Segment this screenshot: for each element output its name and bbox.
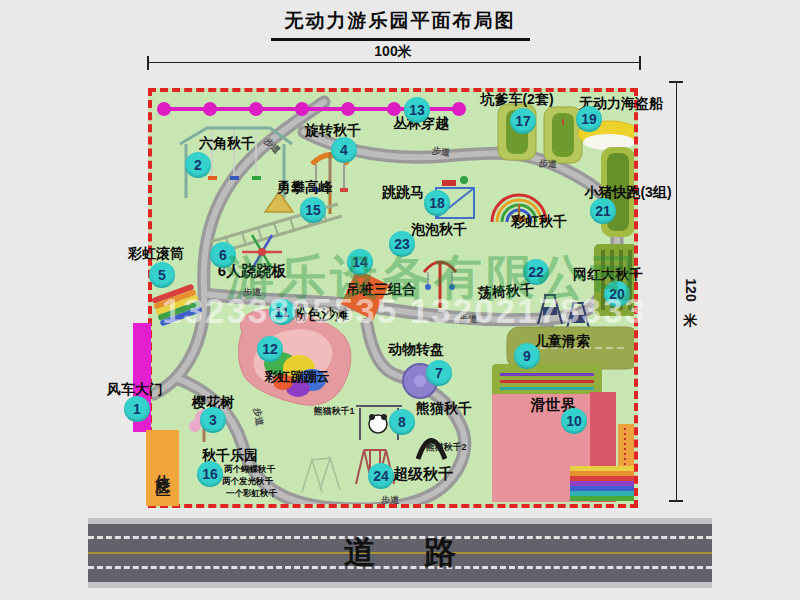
label-hexagon-swing: 六角秋千 xyxy=(199,135,255,153)
slide-world-blocks xyxy=(492,364,634,502)
title-wrap: 无动力游乐园平面布局图 xyxy=(0,8,800,41)
badge-14: 14 xyxy=(347,249,373,275)
path-label: 步道 xyxy=(243,286,261,299)
badge-3: 3 xyxy=(200,407,226,433)
badge-6: 6 xyxy=(210,242,236,268)
badge-19: 19 xyxy=(576,106,602,132)
dim-tick xyxy=(147,56,149,70)
dim-tick xyxy=(669,81,683,83)
badge-21: 21 xyxy=(590,198,616,224)
label-panda-swing-1: 熊猫秋千1 xyxy=(313,405,354,418)
dim-tick xyxy=(639,56,641,70)
rest-area-box: 休息区 xyxy=(146,430,179,506)
label-zipline: 儿童滑索 xyxy=(534,333,590,351)
badge-12: 12 xyxy=(257,336,283,362)
height-dimension-label: 120米 xyxy=(682,278,700,301)
label-panda-swing: 熊猫秋千 xyxy=(416,400,472,418)
rainbow-roller-icon xyxy=(152,283,203,326)
badge-18: 18 xyxy=(424,190,450,216)
label-rainbow-swing: 彩虹秋千 xyxy=(511,213,567,231)
label-pink-beach: 粉色沙滩 xyxy=(293,306,349,324)
bubble-swing-icon xyxy=(424,262,456,308)
label-pit-cart: 坑爹车(2套) xyxy=(480,91,553,109)
path-label: 步道 xyxy=(459,313,477,326)
path-label: 步道 xyxy=(538,157,557,172)
badge-13: 13 xyxy=(404,97,430,123)
rest-area-label: 休息区 xyxy=(153,462,172,474)
badge-20: 20 xyxy=(604,281,630,307)
badge-17: 17 xyxy=(510,108,536,134)
label-climbing-peak: 勇攀高峰 xyxy=(277,179,333,197)
label-rainbow-cloud: 彩虹蹦蹦云 xyxy=(265,368,330,386)
label-swing-park-note-2: 两个发光秋千 xyxy=(222,476,273,488)
road-label: 道路 xyxy=(344,531,504,575)
badge-23: 23 xyxy=(389,231,415,257)
label-super-swing: 超级秋千 xyxy=(393,465,453,484)
width-dimension-label: 100米 xyxy=(374,43,411,61)
label-jumping-horse: 跳跳马 xyxy=(382,184,424,202)
path-label: 步道 xyxy=(431,144,451,159)
badge-5: 5 xyxy=(149,262,175,288)
badge-10: 10 xyxy=(561,408,587,434)
badge-2: 2 xyxy=(185,152,211,178)
label-panda-swing-2: 熊猫秋千2 xyxy=(425,441,466,454)
park-layout-map: 无动力游乐园平面布局图 100米 120米 xyxy=(0,0,800,600)
road: 道路 xyxy=(88,518,712,588)
path-label: 步道 xyxy=(381,494,399,507)
badge-9: 9 xyxy=(514,343,540,369)
badge-8: 8 xyxy=(389,409,415,435)
dim-tick xyxy=(669,500,683,502)
label-hanging-pile: 吊桩三组合 xyxy=(346,281,416,299)
badge-15: 15 xyxy=(300,197,326,223)
label-rotating-swing: 旋转秋千 xyxy=(305,122,361,140)
label-rainbow-roller: 彩虹滚筒 xyxy=(128,245,184,263)
width-dimension-line xyxy=(148,62,640,63)
badge-16: 16 xyxy=(197,461,223,487)
swing-park-icon xyxy=(302,458,340,492)
badge-22: 22 xyxy=(523,259,549,285)
badge-11: 11 xyxy=(269,299,295,325)
label-animal-turntable: 动物转盘 xyxy=(388,341,444,359)
badge-1: 1 xyxy=(124,396,150,422)
page-title: 无动力游乐园平面布局图 xyxy=(271,8,530,41)
badge-24: 24 xyxy=(368,463,394,489)
label-big-swing: 网红大秋千 xyxy=(573,266,643,284)
badge-4: 4 xyxy=(331,137,357,163)
height-dimension-line xyxy=(676,82,677,502)
label-swing-park-note-1: 两个蝴蝶秋千 xyxy=(224,464,275,476)
label-bubble-swing: 泡泡秋千 xyxy=(411,221,467,239)
label-swing-park-note-3: 一个彩虹秋千 xyxy=(226,488,277,500)
badge-7: 7 xyxy=(426,360,452,386)
